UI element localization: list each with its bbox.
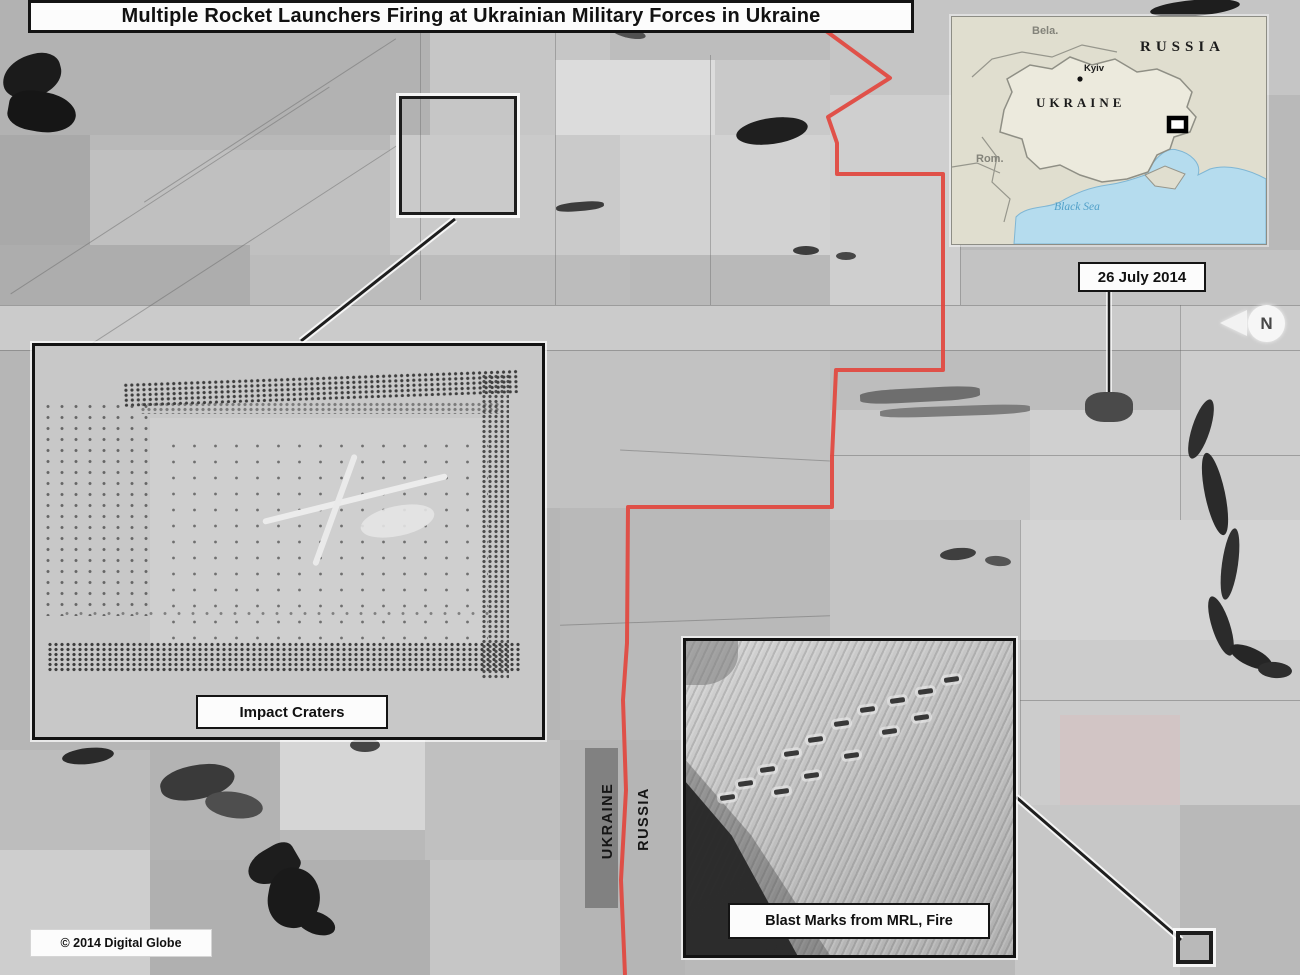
terrain-dark-feature: [1085, 392, 1133, 422]
treeline-bottom: [47, 642, 522, 672]
terrain-field: [90, 150, 390, 260]
terrain-field: [830, 520, 1020, 640]
field-boundary: [0, 305, 1300, 306]
terrain-field: [545, 350, 835, 508]
terrain-field: [1020, 520, 1300, 640]
terrain-field: [830, 410, 1030, 520]
impact-craters-inset: Impact Craters: [32, 343, 545, 740]
terrain-field: [830, 95, 960, 305]
north-arrow-triangle-icon: [1220, 310, 1247, 336]
terrain-dark-feature: [836, 252, 856, 260]
terrain-field: [0, 135, 90, 245]
field-boundary: [1180, 305, 1181, 520]
terrain-dark-feature: [793, 246, 819, 255]
terrain-field: [1030, 410, 1180, 520]
terrain-field: [620, 135, 830, 255]
copyright-label: © 2014 Digital Globe: [30, 929, 212, 957]
field-boundary: [710, 55, 711, 305]
graphic-title: Multiple Rocket Launchers Firing at Ukra…: [28, 0, 914, 33]
map-label-kyiv: Kyiv: [1084, 63, 1104, 74]
terrain-field: [555, 60, 715, 135]
annotated-satellite-image: UKRAINE RUSSIA Impact Craters Blast Mark…: [0, 0, 1300, 975]
map-label-romania: Rom.: [976, 153, 1004, 165]
north-letter: N: [1248, 305, 1285, 342]
terrain-field: [430, 860, 560, 975]
blast-location-box: [1176, 931, 1213, 964]
map-label-black-sea: Black Sea: [1050, 201, 1104, 215]
area-of-interest-marker: [1169, 118, 1186, 131]
border-label-ukraine: UKRAINE: [600, 766, 616, 876]
terrain-field: [1015, 805, 1180, 975]
blast-marks-callout-label: Blast Marks from MRL, Fire: [728, 903, 990, 939]
locator-map: RUSSIA UKRAINE Bela. Rom. Kyiv Black Sea: [952, 17, 1266, 244]
terrain-dark-feature: [350, 738, 380, 752]
impact-location-box: [399, 96, 517, 215]
speckle-left: [41, 401, 153, 616]
field-boundary: [1020, 520, 1021, 805]
field-boundary: [1020, 700, 1300, 701]
border-label-russia: RUSSIA: [636, 764, 652, 874]
terrain-field: [560, 740, 685, 975]
kyiv-dot: [1077, 76, 1082, 81]
terrain-field: [425, 740, 560, 860]
field-boundary: [555, 0, 556, 305]
impact-craters-callout-label: Impact Craters: [196, 695, 388, 729]
treeline-top-fade: [140, 402, 500, 414]
map-label-ukraine: UKRAINE: [1036, 95, 1125, 111]
terrain-field: [0, 750, 150, 850]
map-label-russia: RUSSIA: [1140, 39, 1225, 56]
date-label: 26 July 2014: [1078, 262, 1206, 292]
field-boundary: [830, 455, 1300, 456]
terrain-field: [280, 740, 425, 830]
map-label-belarus: Bela.: [1032, 25, 1058, 37]
blast-marks-inset: Blast Marks from MRL, Fire: [683, 638, 1016, 958]
